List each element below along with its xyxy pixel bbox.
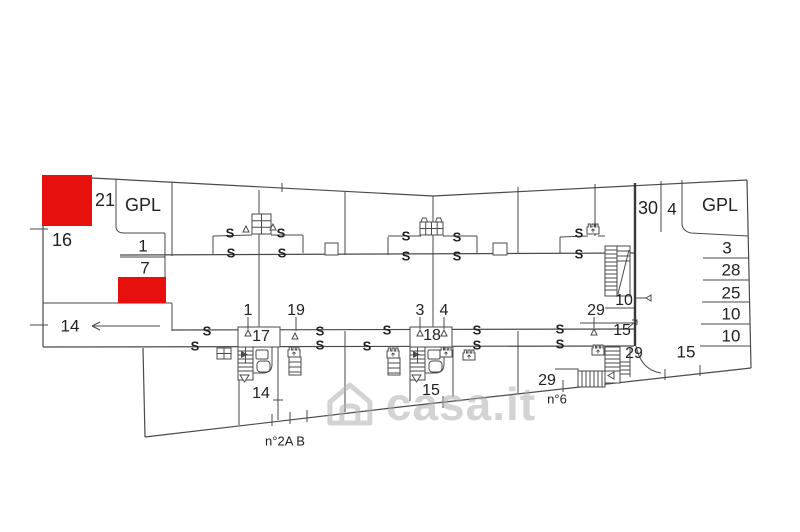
label-stair-10: 10	[615, 293, 633, 309]
upper-long-wall	[120, 253, 634, 255]
s-mark: S	[453, 250, 462, 263]
chimney-unit-1	[243, 214, 276, 234]
label-door-3: 3	[416, 303, 425, 319]
bottom-boundary-line	[145, 368, 751, 437]
s-mark: S	[227, 247, 236, 260]
s-mark: S	[191, 340, 200, 353]
label-mid-29: 29	[538, 373, 556, 389]
s-mark: S	[575, 227, 584, 240]
lower-left-edge	[143, 348, 145, 437]
s-mark: S	[316, 339, 325, 352]
label-entrance-n6: n°6	[547, 393, 567, 406]
s-mark: S	[363, 340, 372, 353]
label-parcel-30: 30	[638, 199, 658, 217]
floor-plan-image: casa.it 21 GPL 16 1 7 14 30 4 GPL 3 28 2…	[0, 0, 800, 532]
label-door-19: 19	[287, 303, 305, 319]
label-door-4: 4	[440, 303, 449, 319]
label-row-28: 28	[722, 262, 741, 279]
left-survey-ticks	[30, 229, 48, 325]
s-mark: S	[316, 325, 325, 338]
label-unit-17: 17	[252, 329, 270, 345]
label-row-3: 3	[722, 240, 731, 257]
label-row-10a: 10	[722, 306, 741, 323]
label-room-14: 14	[252, 386, 270, 402]
label-10-marker	[646, 295, 651, 301]
s-mark: S	[575, 248, 584, 261]
s-mark: S	[453, 231, 462, 244]
label-entrance-n2ab: n°2A B	[265, 435, 305, 448]
label-parcel-1: 1	[138, 238, 147, 255]
s-mark: S	[473, 324, 482, 337]
s-mark: S	[278, 247, 287, 260]
label-gpl-right: GPL	[702, 196, 738, 214]
s-mark: S	[226, 227, 235, 240]
s-mark: S	[402, 250, 411, 263]
label-corner-15: 15	[677, 344, 696, 361]
label-unit-18: 18	[423, 328, 441, 344]
label-row-10b: 10	[722, 328, 741, 345]
label-stair-29: 29	[587, 303, 605, 319]
top-boundary-line	[92, 178, 747, 196]
plan-linework	[0, 0, 800, 532]
s-mark: S	[203, 325, 212, 338]
s-mark: S	[383, 324, 392, 337]
label-row-25: 25	[722, 285, 741, 302]
lower-long-wall	[43, 346, 634, 347]
highlighted-parcel-7	[118, 277, 166, 303]
label-stair-15: 15	[613, 323, 631, 339]
label-door-1: 1	[244, 303, 253, 319]
label-parcel-14: 14	[61, 318, 80, 335]
vent-icon	[243, 226, 249, 232]
label-parcel-16: 16	[52, 231, 72, 249]
chimney-unit-2	[420, 218, 443, 235]
label-parcel-21: 21	[95, 191, 115, 209]
right-boundary-line	[747, 180, 751, 368]
s-mark: S	[277, 227, 286, 240]
door-marker-triangle	[591, 329, 597, 335]
label-parcel-4: 4	[667, 201, 676, 218]
s-mark: S	[556, 338, 565, 351]
parcel-14-arrow	[92, 322, 160, 330]
s-mark: S	[556, 323, 565, 336]
chimney-unit-3	[587, 224, 599, 234]
highlighted-parcel-16-21	[42, 175, 92, 226]
label-parcel-7: 7	[140, 260, 149, 277]
s-mark: S	[402, 230, 411, 243]
s-mark: S	[473, 339, 482, 352]
label-room-15: 15	[422, 383, 440, 399]
label-corner-29: 29	[625, 346, 643, 362]
label-gpl-left: GPL	[125, 196, 161, 214]
step-wall	[555, 369, 578, 387]
door-marker-triangle	[292, 333, 298, 339]
